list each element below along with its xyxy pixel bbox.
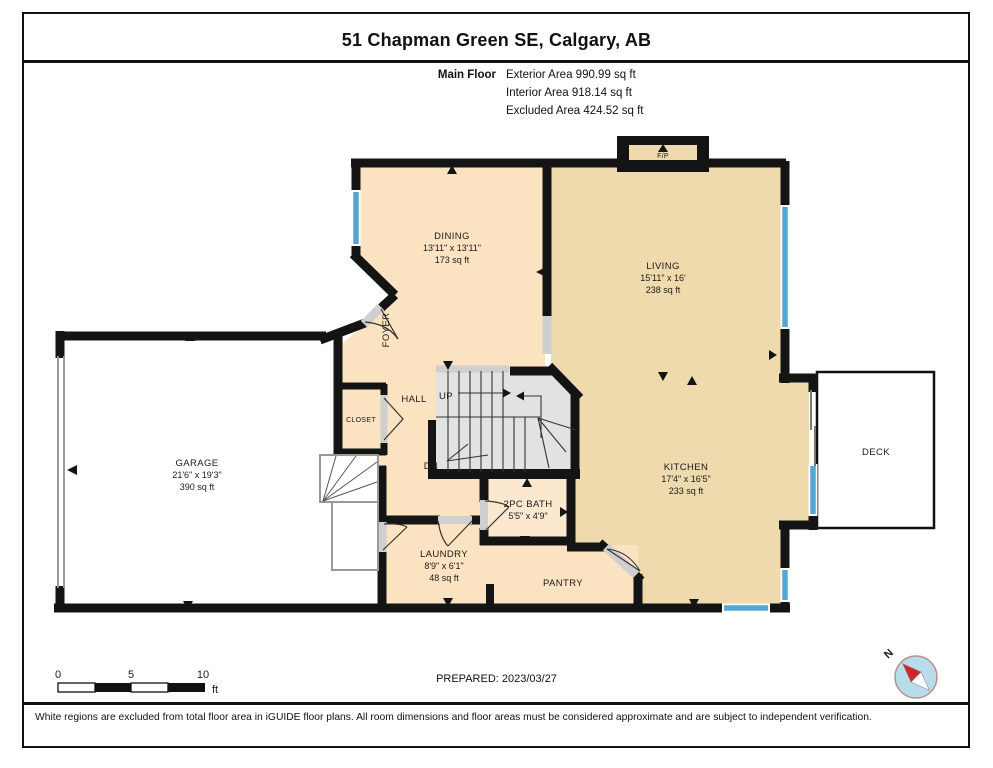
excluded-area-line: Excluded Area 424.52 sq ft bbox=[506, 105, 806, 117]
footer-divider bbox=[22, 702, 970, 705]
title-divider bbox=[22, 60, 970, 63]
disclaimer-text: White regions are excluded from total fl… bbox=[35, 712, 965, 723]
interior-area-line: Interior Area 918.14 sq ft bbox=[506, 87, 806, 99]
page-title: 51 Chapman Green SE, Calgary, AB bbox=[0, 30, 993, 51]
page-border bbox=[22, 12, 970, 748]
exterior-area-line: Exterior Area 990.99 sq ft bbox=[506, 69, 806, 81]
prepared-date: PREPARED: 2023/03/27 bbox=[0, 673, 993, 685]
floor-name-label: Main Floor bbox=[300, 69, 496, 81]
